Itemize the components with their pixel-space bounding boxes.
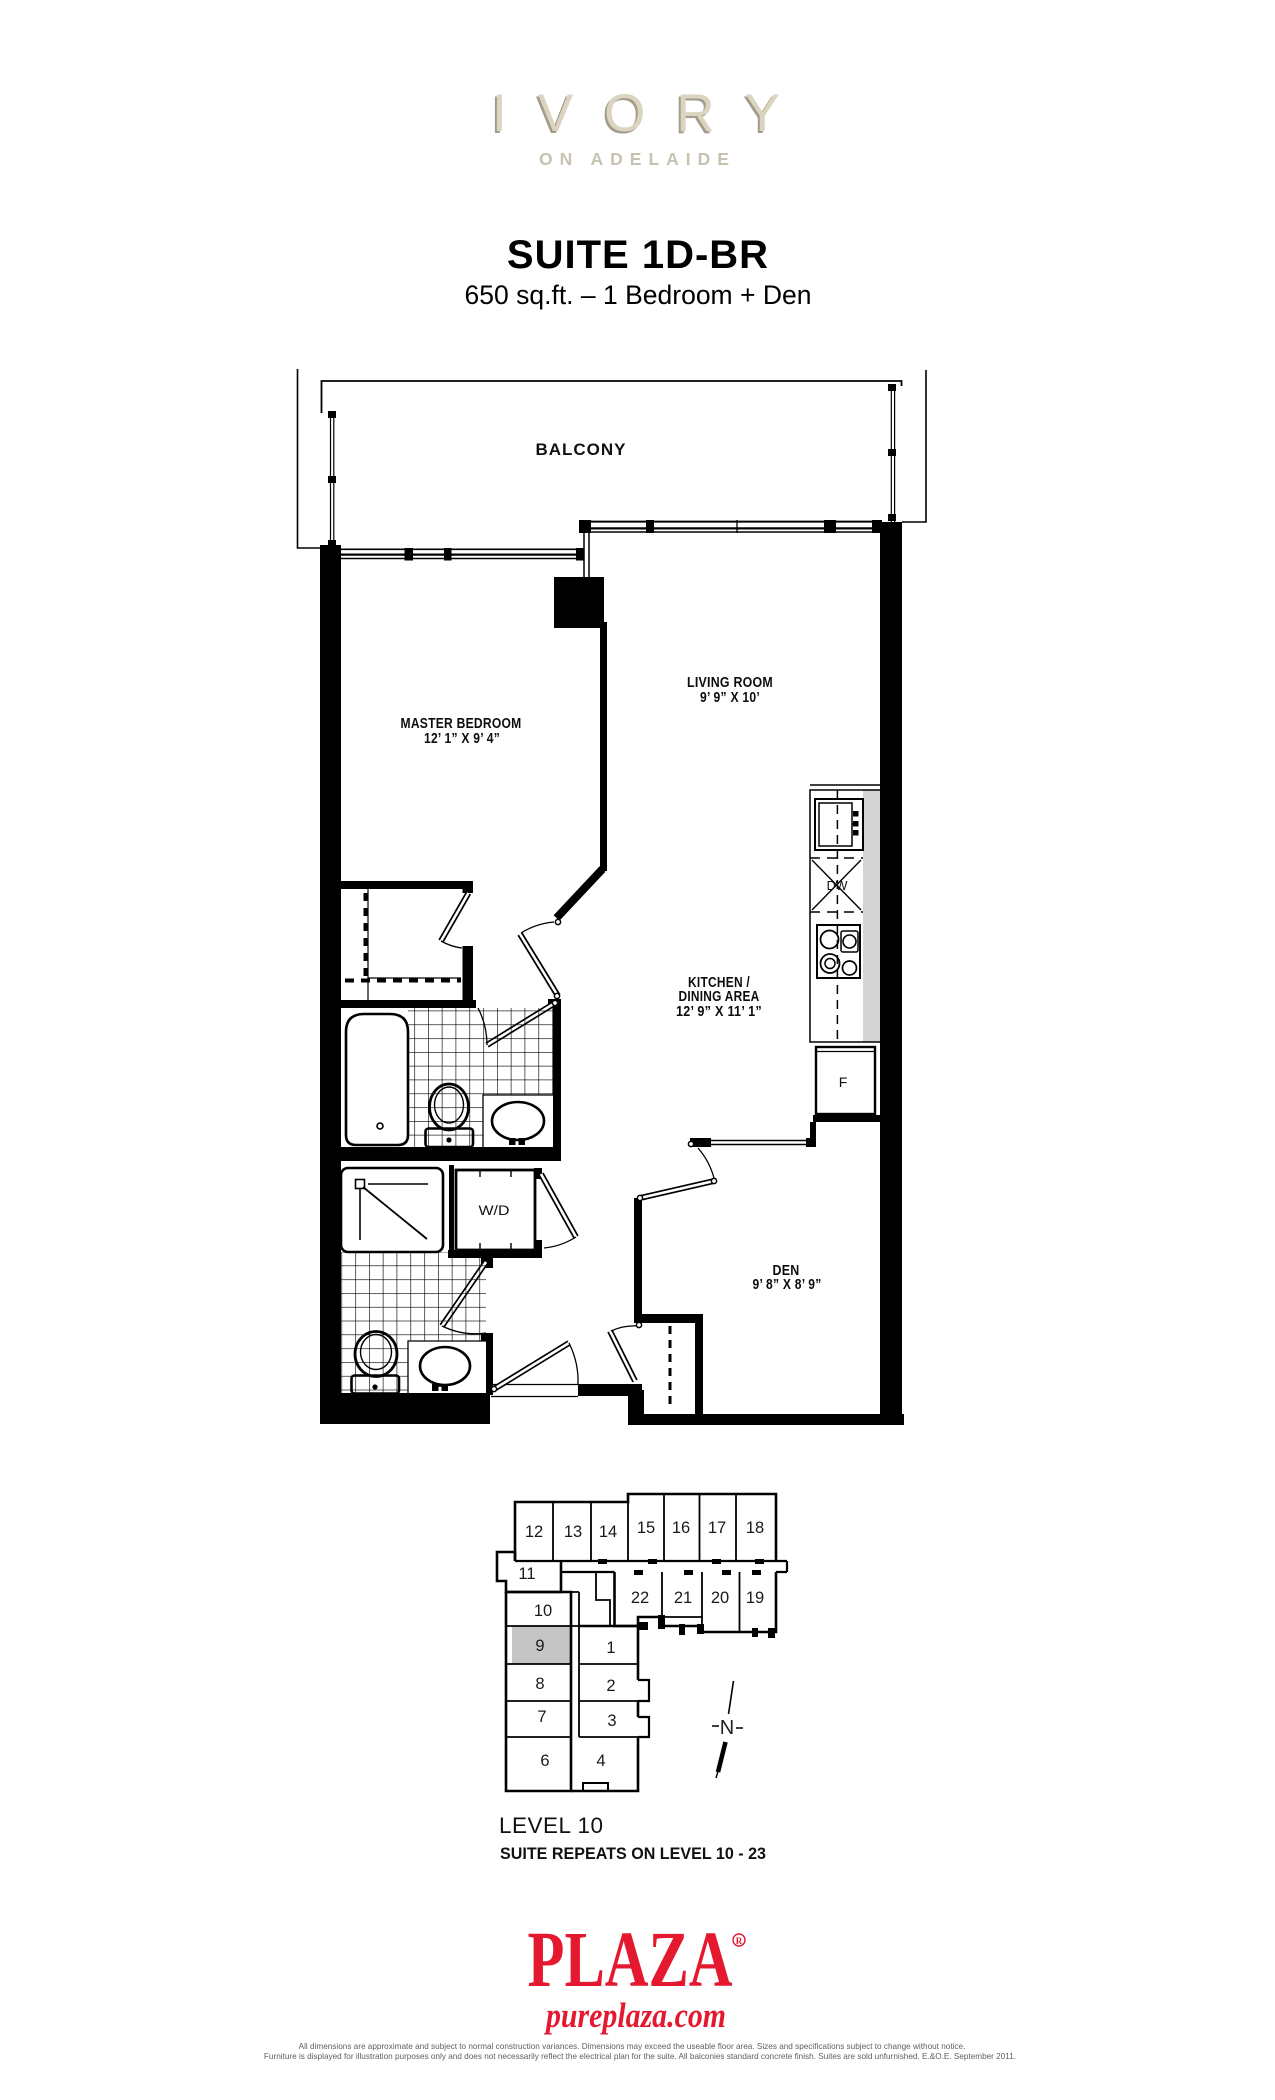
svg-text:IVORY: IVORY (492, 84, 811, 143)
svg-text:Furniture is displayed for ill: Furniture is displayed for illustration … (264, 2052, 1016, 2061)
svg-text:ON ADELAIDE: ON ADELAIDE (539, 149, 736, 169)
svg-text:LIVING ROOM: LIVING ROOM (687, 675, 773, 691)
svg-text:20: 20 (711, 1589, 729, 1607)
svg-text:17: 17 (708, 1519, 726, 1537)
svg-text:9’ 8” X 8’ 9”: 9’ 8” X 8’ 9” (753, 1277, 822, 1293)
svg-text:21: 21 (674, 1589, 692, 1607)
svg-text:All dimensions are approximate: All dimensions are approximate and subje… (299, 2042, 966, 2051)
svg-text:4: 4 (596, 1752, 605, 1770)
svg-text:BALCONY: BALCONY (536, 440, 627, 459)
svg-text:8: 8 (535, 1675, 544, 1693)
svg-text:12’ 1” X 9’ 4”: 12’ 1” X 9’ 4” (424, 731, 500, 747)
svg-text:1: 1 (606, 1639, 615, 1657)
svg-text:pureplaza.com: pureplaza.com (543, 1996, 726, 2035)
svg-text:13: 13 (564, 1523, 582, 1541)
svg-text:15: 15 (637, 1519, 655, 1537)
svg-text:18: 18 (746, 1519, 764, 1537)
svg-text:F: F (839, 1074, 848, 1090)
svg-text:6: 6 (540, 1752, 549, 1770)
svg-text:DINING AREA: DINING AREA (679, 989, 760, 1005)
svg-text:W/D: W/D (479, 1202, 510, 1218)
svg-text:DW: DW (827, 879, 848, 893)
svg-text:2: 2 (606, 1677, 615, 1695)
svg-text:7: 7 (537, 1708, 546, 1726)
svg-text:12’ 9” X 11’ 1”: 12’ 9” X 11’ 1” (676, 1004, 762, 1020)
svg-text:19: 19 (746, 1589, 764, 1607)
svg-text:16: 16 (672, 1519, 690, 1537)
svg-text:22: 22 (631, 1589, 649, 1607)
svg-text:12: 12 (525, 1523, 543, 1541)
svg-text:LEVEL 10: LEVEL 10 (499, 1813, 604, 1838)
svg-text:SUITE REPEATS ON LEVEL 10 - 23: SUITE REPEATS ON LEVEL 10 - 23 (500, 1845, 766, 1863)
svg-text:SUITE 1D-BR: SUITE 1D-BR (507, 233, 769, 277)
svg-text:650 sq.ft. – 1 Bedroom + Den: 650 sq.ft. – 1 Bedroom + Den (465, 280, 812, 310)
svg-text:14: 14 (599, 1523, 617, 1541)
svg-text:R: R (736, 1936, 743, 1946)
svg-text:10: 10 (534, 1602, 552, 1620)
svg-text:PLAZA: PLAZA (528, 1917, 733, 2004)
svg-text:MASTER BEDROOM: MASTER BEDROOM (401, 716, 522, 732)
svg-text:3: 3 (607, 1712, 616, 1730)
svg-text:9: 9 (535, 1637, 544, 1655)
svg-text:11: 11 (518, 1565, 535, 1583)
svg-text:N: N (720, 1717, 734, 1739)
svg-text:9’ 9” X 10’: 9’ 9” X 10’ (700, 690, 760, 706)
